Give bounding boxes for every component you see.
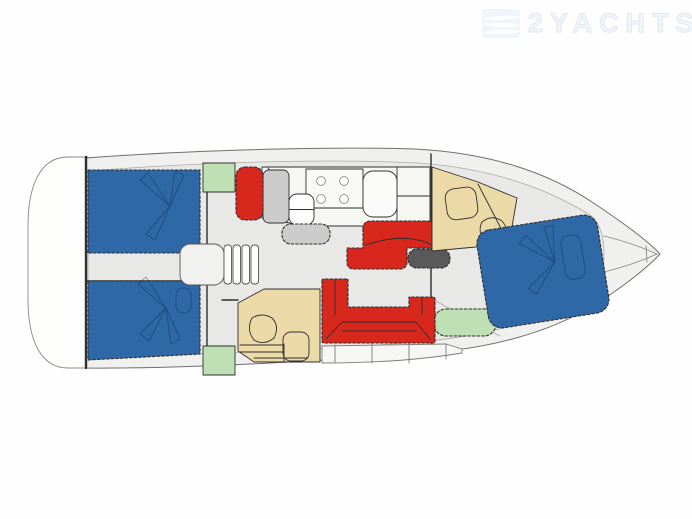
stove-top	[306, 169, 363, 208]
galley-fridge	[236, 167, 263, 220]
forward-cabin-bed	[475, 213, 611, 330]
aft-head-floor	[238, 289, 320, 362]
galley-cabinet	[263, 170, 289, 223]
galley-bench	[282, 224, 330, 244]
aft-cabin-starboard-bed	[88, 281, 200, 360]
companionway-steps	[180, 244, 259, 285]
deck-plan-canvas	[0, 0, 692, 519]
companionway-landing	[180, 244, 224, 285]
forward-cabin-bench	[434, 309, 496, 336]
aft-head	[238, 289, 320, 362]
swim-platform	[28, 157, 88, 368]
aft-cabin-port-bed	[88, 170, 200, 253]
nav-seat	[408, 249, 450, 268]
yacht-deck-plan: 2YACHTS	[0, 0, 692, 519]
starboard-wardrobe-locker	[203, 346, 235, 375]
galley-sink-drainer	[363, 171, 397, 217]
port-wardrobe-locker	[203, 163, 235, 192]
hull-side-lockers	[322, 344, 462, 363]
